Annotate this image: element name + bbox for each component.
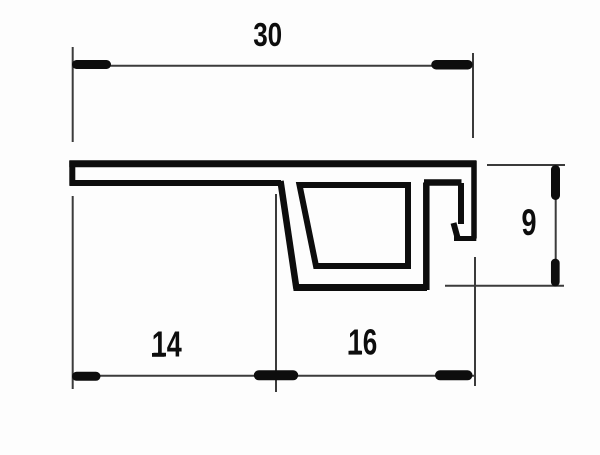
svg-text:16: 16	[348, 322, 377, 363]
svg-text:9: 9	[522, 202, 537, 243]
svg-text:30: 30	[253, 16, 282, 53]
svg-text:14: 14	[152, 324, 182, 365]
